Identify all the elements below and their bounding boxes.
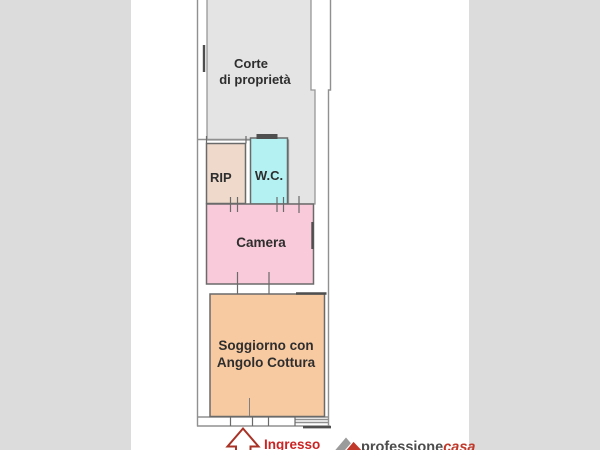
entrance-label: Ingresso [264,437,320,450]
logo-text-primary: professione [361,440,443,450]
soggiorno-label-line1: Soggiorno con [218,338,313,353]
left-letterbox-bar [0,0,131,450]
right-letterbox-bar [469,0,600,450]
courtyard-label-line2: di proprietà [219,72,291,87]
outer-wall-right [329,0,331,427]
soggiorno-label-line2: Angolo Cottura [217,355,316,370]
logo-text-accent: casa [443,440,475,450]
bottom-right-threshold [295,417,329,426]
courtyard-label-line1: Corte [234,56,268,71]
floor-plan-drawing: Corte di proprietà RIP W.C. Camera Soggi… [0,0,600,450]
wc-window-mark [257,134,278,139]
rip-label: RIP [210,170,232,185]
logo-text: professionecasa [361,440,475,450]
entrance-arrow-icon [228,429,259,450]
agency-logo: professionecasa [335,438,476,450]
camera-label: Camera [236,235,286,250]
bottom-wall-door-ticks [231,417,269,426]
wc-label: W.C. [255,168,283,183]
floor-plan-screenshot: Corte di proprietà RIP W.C. Camera Soggi… [0,0,600,450]
